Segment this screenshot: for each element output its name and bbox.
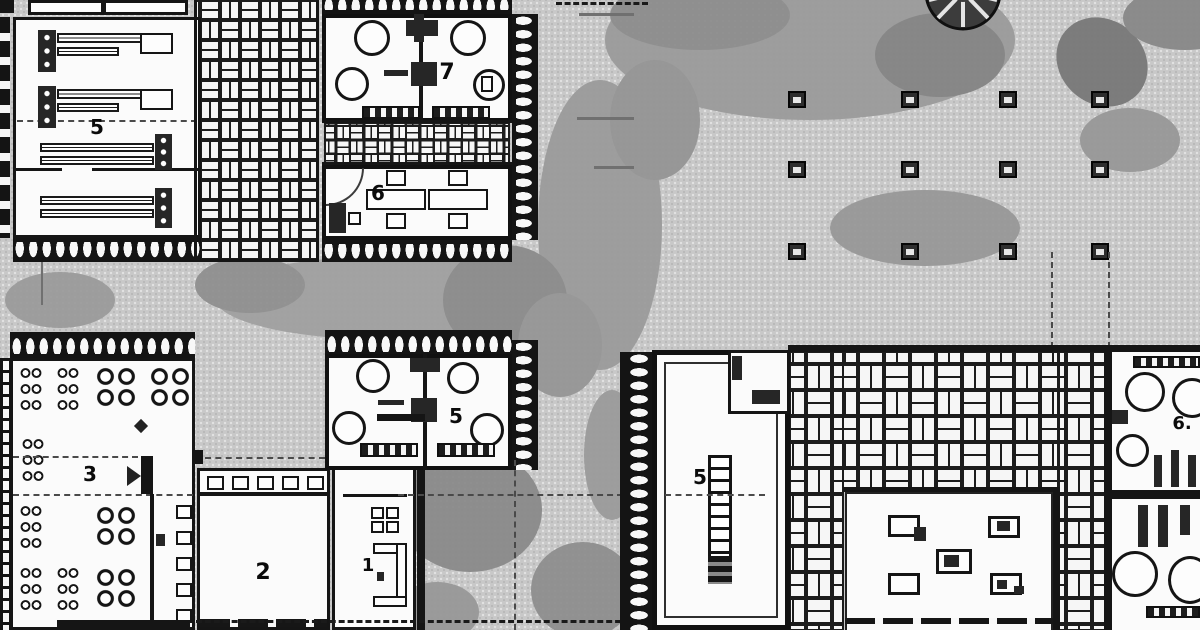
leader-line bbox=[579, 13, 634, 16]
fixture bbox=[411, 62, 437, 86]
fixture bbox=[371, 507, 384, 519]
exhibit-table bbox=[888, 573, 920, 595]
grate bbox=[362, 106, 420, 119]
partial-room bbox=[103, 0, 188, 15]
leader-line bbox=[577, 117, 634, 120]
table-4-chairs bbox=[95, 366, 137, 408]
table-4-chairs bbox=[95, 505, 137, 547]
chair bbox=[448, 170, 468, 186]
wash-fixture bbox=[1112, 551, 1158, 597]
shelf bbox=[40, 156, 154, 165]
desk bbox=[428, 189, 488, 210]
planter bbox=[999, 243, 1017, 260]
floor-plan-canvas: 576321556. bbox=[0, 0, 1200, 630]
partition-wall bbox=[377, 414, 425, 421]
wash-fixture bbox=[354, 20, 390, 56]
planter bbox=[999, 91, 1017, 108]
display-case bbox=[207, 476, 224, 490]
canopy bbox=[13, 238, 201, 262]
tap bbox=[1154, 455, 1162, 487]
planter bbox=[1091, 243, 1109, 260]
wall-bar bbox=[57, 620, 190, 630]
planter bbox=[1091, 161, 1109, 178]
tap bbox=[1180, 505, 1190, 535]
fixture bbox=[944, 555, 959, 567]
planter bbox=[901, 161, 919, 178]
seat-row bbox=[20, 503, 42, 553]
partition-line bbox=[13, 494, 193, 496]
grate bbox=[437, 443, 495, 457]
planter bbox=[901, 243, 919, 260]
centerline bbox=[665, 494, 765, 496]
shelf bbox=[40, 209, 154, 218]
shelf bbox=[57, 103, 119, 112]
grate bbox=[360, 443, 418, 457]
fixture-detail bbox=[481, 76, 493, 92]
leader-line bbox=[594, 166, 634, 169]
fixture bbox=[378, 400, 404, 405]
tap bbox=[1188, 455, 1196, 487]
boundary-wall bbox=[417, 445, 425, 630]
wash-fixture bbox=[1125, 372, 1165, 412]
fixture bbox=[371, 521, 384, 533]
tap bbox=[1138, 505, 1148, 547]
counter-shelf-dark bbox=[708, 556, 732, 584]
building-a-left-wall bbox=[0, 17, 10, 238]
fixture bbox=[752, 390, 780, 404]
grate bbox=[432, 106, 490, 119]
fixture bbox=[914, 527, 926, 541]
room-label-1: 1 bbox=[362, 557, 375, 575]
room-label-6-washroom: 6. bbox=[1172, 415, 1191, 433]
shelf bbox=[40, 196, 154, 205]
leader-line bbox=[41, 262, 43, 305]
fixture bbox=[386, 507, 399, 519]
counter bbox=[373, 596, 407, 607]
paving-edge bbox=[194, 259, 319, 262]
planter bbox=[999, 161, 1017, 178]
band-wall bbox=[322, 120, 512, 123]
partition-line bbox=[13, 456, 138, 458]
tap bbox=[1158, 505, 1168, 547]
shelf-block bbox=[140, 33, 173, 54]
wash-fixture bbox=[332, 411, 366, 445]
courtyard-north-wall bbox=[788, 345, 1200, 352]
chair bbox=[448, 213, 468, 229]
fixture bbox=[414, 14, 424, 42]
partition-wall bbox=[200, 492, 327, 496]
chair bbox=[386, 170, 406, 186]
wash-fixture bbox=[450, 20, 486, 56]
canopy bbox=[322, 240, 512, 262]
room-label-6-office: 6 bbox=[371, 183, 385, 203]
canopy bbox=[10, 332, 195, 358]
street-centerline bbox=[398, 494, 623, 496]
display-case bbox=[176, 531, 192, 545]
fixture bbox=[997, 521, 1010, 531]
partial-room bbox=[28, 0, 104, 15]
room-label-5-washroom: 5 bbox=[449, 406, 463, 426]
shelf bbox=[40, 143, 154, 152]
wash-fixture bbox=[447, 362, 479, 394]
display-case bbox=[307, 476, 324, 490]
fixture bbox=[384, 70, 408, 76]
planter bbox=[788, 161, 806, 178]
wash-fixture bbox=[470, 413, 504, 447]
wash-fixture bbox=[356, 359, 390, 393]
partition-wall bbox=[1108, 490, 1200, 499]
shelf-end-panel bbox=[38, 86, 56, 128]
display-case bbox=[282, 476, 299, 490]
seat-row bbox=[57, 565, 79, 615]
fixture bbox=[1014, 586, 1024, 594]
bottom-wall bbox=[845, 618, 1053, 624]
door-jamb bbox=[141, 456, 153, 494]
seat-row bbox=[22, 436, 44, 486]
property-line bbox=[1108, 252, 1110, 348]
partition-wall bbox=[16, 168, 62, 171]
seat-row bbox=[20, 365, 42, 415]
seat-row bbox=[57, 365, 79, 415]
table-4-chairs bbox=[95, 567, 137, 609]
room-label-5-hall: 5 bbox=[693, 467, 707, 487]
cabinet bbox=[348, 212, 361, 225]
paving-edge bbox=[316, 0, 319, 262]
canopy bbox=[512, 340, 538, 470]
room-label-3: 3 bbox=[83, 464, 97, 484]
canopy bbox=[620, 352, 652, 630]
table-4-chairs bbox=[149, 366, 191, 408]
canopy bbox=[512, 14, 538, 240]
wash-fixture bbox=[1116, 434, 1149, 467]
shelf-block bbox=[140, 89, 173, 110]
canopy bbox=[325, 330, 512, 356]
seat-row bbox=[20, 565, 42, 615]
room-label-5-library: 5 bbox=[90, 117, 104, 137]
display-case bbox=[176, 583, 192, 597]
chair bbox=[386, 213, 406, 229]
display-case bbox=[257, 476, 274, 490]
planter bbox=[788, 243, 806, 260]
partition-wall bbox=[92, 168, 198, 171]
grate bbox=[1146, 606, 1200, 618]
shelf-end-panel bbox=[38, 30, 56, 72]
fixture bbox=[1112, 410, 1128, 424]
street-edge bbox=[196, 620, 630, 623]
wash-fixture bbox=[335, 67, 369, 101]
cabinet bbox=[329, 203, 346, 233]
partition-wall bbox=[150, 494, 154, 630]
fixture bbox=[997, 580, 1007, 589]
partition-line bbox=[205, 457, 325, 459]
canopy bbox=[322, 0, 512, 14]
shelf-end-panel bbox=[155, 134, 172, 170]
property-line bbox=[1051, 252, 1053, 348]
fixture bbox=[410, 358, 440, 372]
room-label-7: 7 bbox=[439, 62, 454, 84]
fixture bbox=[386, 521, 399, 533]
grate bbox=[1133, 356, 1200, 368]
property-line bbox=[556, 2, 648, 5]
exhibit-room-right-wall bbox=[1053, 490, 1060, 630]
planter bbox=[1091, 91, 1109, 108]
display-case bbox=[176, 557, 192, 571]
paving-edge bbox=[194, 0, 197, 262]
fixture bbox=[377, 572, 384, 581]
wall-stub bbox=[0, 0, 14, 13]
planter bbox=[901, 91, 919, 108]
room-label-2: 2 bbox=[255, 562, 270, 584]
street-centerline bbox=[514, 460, 516, 630]
wall-stub bbox=[193, 450, 203, 464]
display-case bbox=[232, 476, 249, 490]
tap bbox=[1171, 450, 1179, 487]
planter bbox=[788, 91, 806, 108]
shelf-end-panel bbox=[155, 188, 172, 228]
fixture bbox=[156, 534, 165, 546]
fixture bbox=[732, 356, 742, 380]
display-case bbox=[176, 505, 192, 519]
shelf bbox=[57, 47, 119, 56]
